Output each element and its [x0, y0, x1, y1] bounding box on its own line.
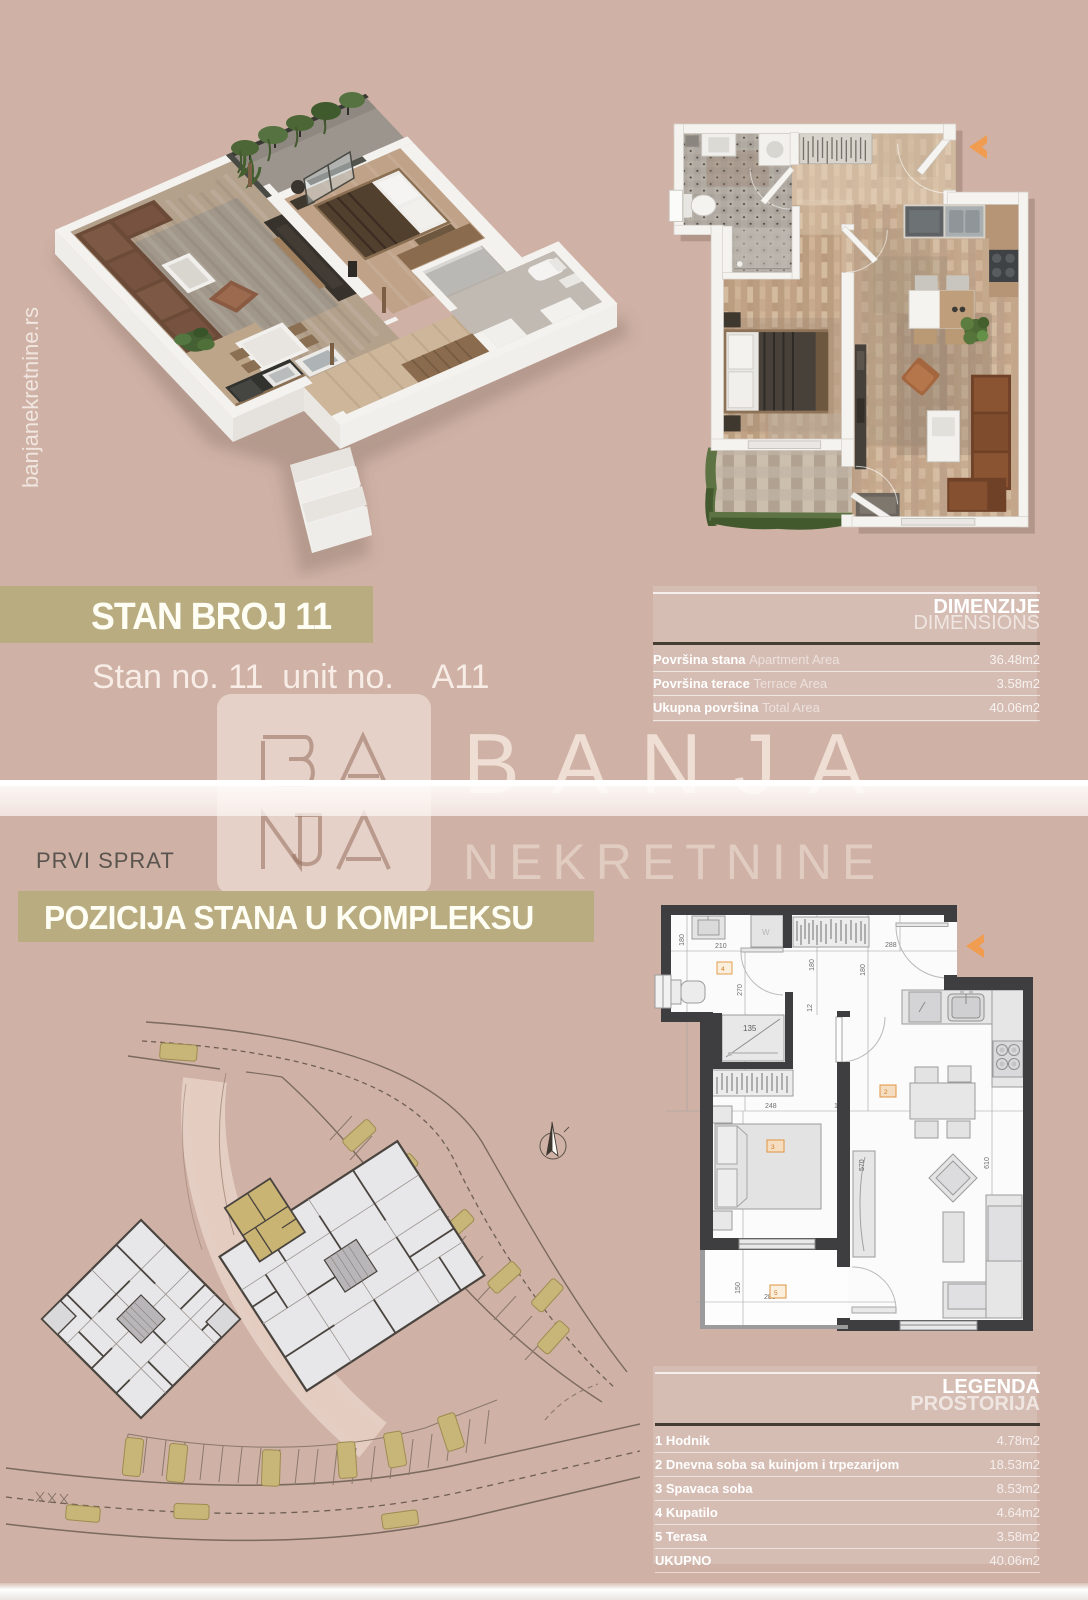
svg-text:3: 3: [771, 1144, 775, 1151]
svg-text:2: 2: [884, 1089, 888, 1096]
svg-text:4: 4: [721, 966, 725, 973]
svg-text:150: 150: [735, 1282, 742, 1294]
svg-text:12: 12: [807, 1004, 814, 1012]
svg-text:135: 135: [743, 1024, 757, 1033]
svg-text:180: 180: [860, 964, 867, 976]
svg-text:570: 570: [859, 1159, 866, 1171]
svg-text:270: 270: [737, 984, 744, 996]
svg-text:180: 180: [679, 934, 686, 946]
svg-text:W: W: [762, 928, 770, 937]
svg-text:210: 210: [715, 943, 727, 950]
svg-text:248: 248: [765, 1103, 777, 1110]
svg-text:288: 288: [885, 942, 897, 949]
svg-text:5: 5: [774, 1290, 778, 1297]
svg-text:180: 180: [809, 959, 816, 971]
svg-text:610: 610: [984, 1157, 991, 1169]
